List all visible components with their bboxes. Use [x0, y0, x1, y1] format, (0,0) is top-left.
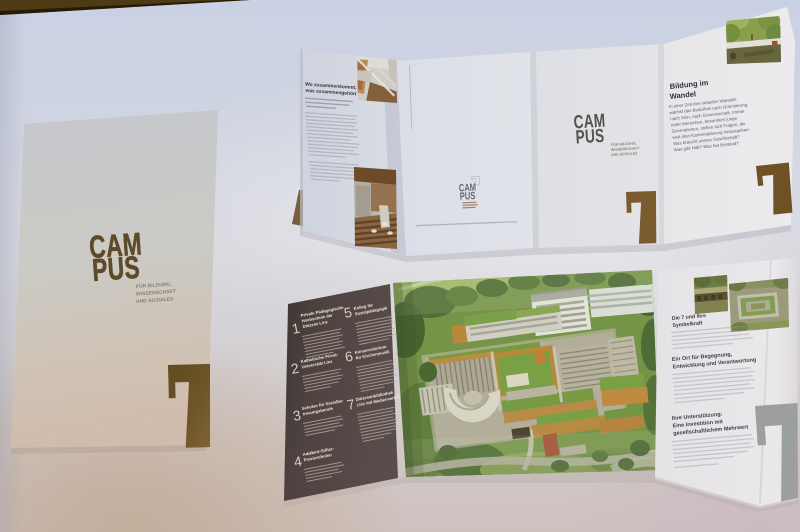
svg-text:PUS: PUS — [575, 125, 605, 149]
svg-text:PUS: PUS — [460, 190, 476, 202]
svg-text:PUS: PUS — [91, 249, 141, 288]
